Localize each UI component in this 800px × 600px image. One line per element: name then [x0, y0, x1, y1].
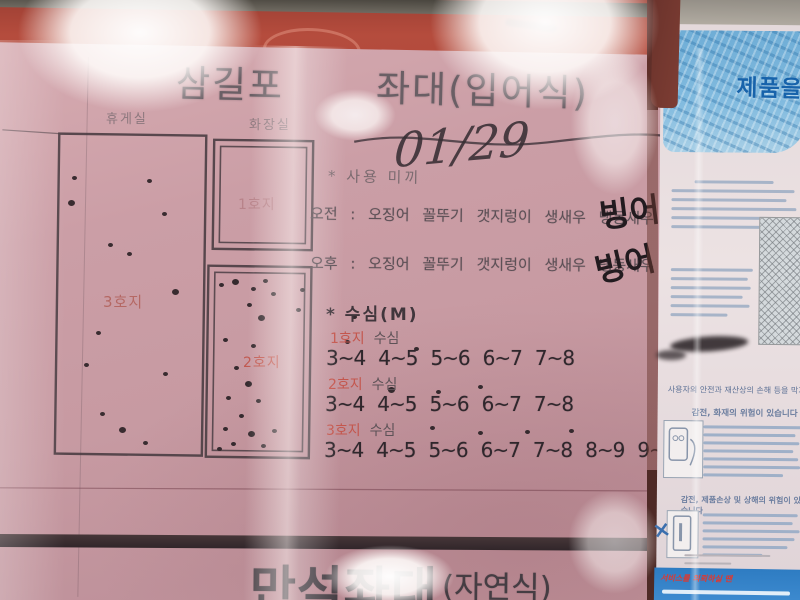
- label-lounge: 휴게실: [106, 108, 148, 127]
- depth-row3-pond: 3호지: [326, 420, 361, 440]
- bottom-title-text: 만석좌대: [250, 549, 439, 600]
- depth-value: 4~5: [378, 346, 417, 370]
- poster-title-text: 제품을: [736, 68, 800, 104]
- poster-bullet-bars-1: [703, 420, 800, 482]
- depth-row2-values: 3~44~55~66~77~8: [325, 392, 573, 416]
- depth-row2-word: 수심: [372, 374, 398, 394]
- depth-value: 5~6: [428, 438, 467, 462]
- depth-value: 5~6: [430, 346, 469, 370]
- depth-value: 7~8: [534, 392, 573, 416]
- poster-paper: 제품을 사용자의 안전과 재산상의 손해 등을 막기 감전: [656, 24, 800, 600]
- poster-service-subtext-bar: [662, 590, 790, 596]
- depth-value: 3~4: [324, 438, 363, 462]
- specks-scattered: [0, 0, 5, 4]
- poster-safety-heading: 사용자의 안전과 재산상의 손해 등을 막기: [668, 384, 800, 396]
- depth-value: 7~8: [533, 438, 572, 462]
- depth-value: 6~7: [483, 346, 522, 370]
- depth-value: 8~9: [585, 438, 624, 462]
- poster-service-band: 서비스를 의뢰하실 땐: [654, 567, 800, 600]
- depth-value: 3~4: [325, 392, 364, 416]
- poster-paragraph-bars-2: [670, 262, 753, 323]
- sign-title-right: 좌대(입어식): [375, 58, 589, 117]
- depth-value: 6~7: [481, 438, 520, 462]
- bottom-subtitle-text: (자연식): [442, 551, 552, 600]
- pond3-label: 3호지: [103, 291, 143, 312]
- poster-mesh-photo: [758, 217, 800, 345]
- label-restroom: 화장실: [249, 114, 291, 133]
- board-frame-corner: [651, 0, 681, 108]
- bottom-sign-title: 만석좌대 (자연식): [250, 549, 552, 600]
- depth-row1-pond: 1호지: [330, 328, 365, 348]
- depth-row3-values: 3~44~55~66~77~88~99~10: [324, 438, 688, 462]
- depth-heading: * 수심(M): [326, 300, 419, 325]
- poster-top-metal: [677, 0, 800, 27]
- sign-title: 삼길포 좌대(입어식): [175, 53, 589, 117]
- depth-value: 3~4: [326, 346, 365, 370]
- depth-row2-label: 2호지 수심: [328, 374, 397, 394]
- depth-value: 4~5: [376, 438, 415, 462]
- depth-row1-word: 수심: [374, 328, 400, 348]
- poster-dark-smudge-small: [656, 350, 686, 360]
- depth-value: 4~5: [377, 392, 416, 416]
- depth-row1-label: 1호지 수심: [330, 328, 399, 348]
- depth-row3-label: 3호지 수심: [326, 420, 395, 440]
- photo-of-fishing-platform-notice-board: 삼길포 좌대(입어식) 휴게실 화장실 1호지 3호지 2호지 * 사용 미끼 …: [0, 0, 800, 600]
- pond1-label: 1호지: [238, 194, 276, 214]
- x-mark-icon: ×: [651, 517, 673, 545]
- poster-warning-electric: 감전, 화재의 위험이 있습니다: [692, 406, 798, 419]
- depth-row3-word: 수심: [370, 420, 396, 440]
- pond2-label: 2호지: [243, 352, 281, 372]
- depth-row2-pond: 2호지: [328, 374, 363, 394]
- depth-value: 6~7: [482, 392, 521, 416]
- sign-title-left: 삼길포: [175, 53, 284, 110]
- depth-row1-values: 3~44~55~66~77~8: [326, 346, 574, 370]
- depth-value: 5~6: [429, 392, 468, 416]
- depth-value: 7~8: [535, 346, 574, 370]
